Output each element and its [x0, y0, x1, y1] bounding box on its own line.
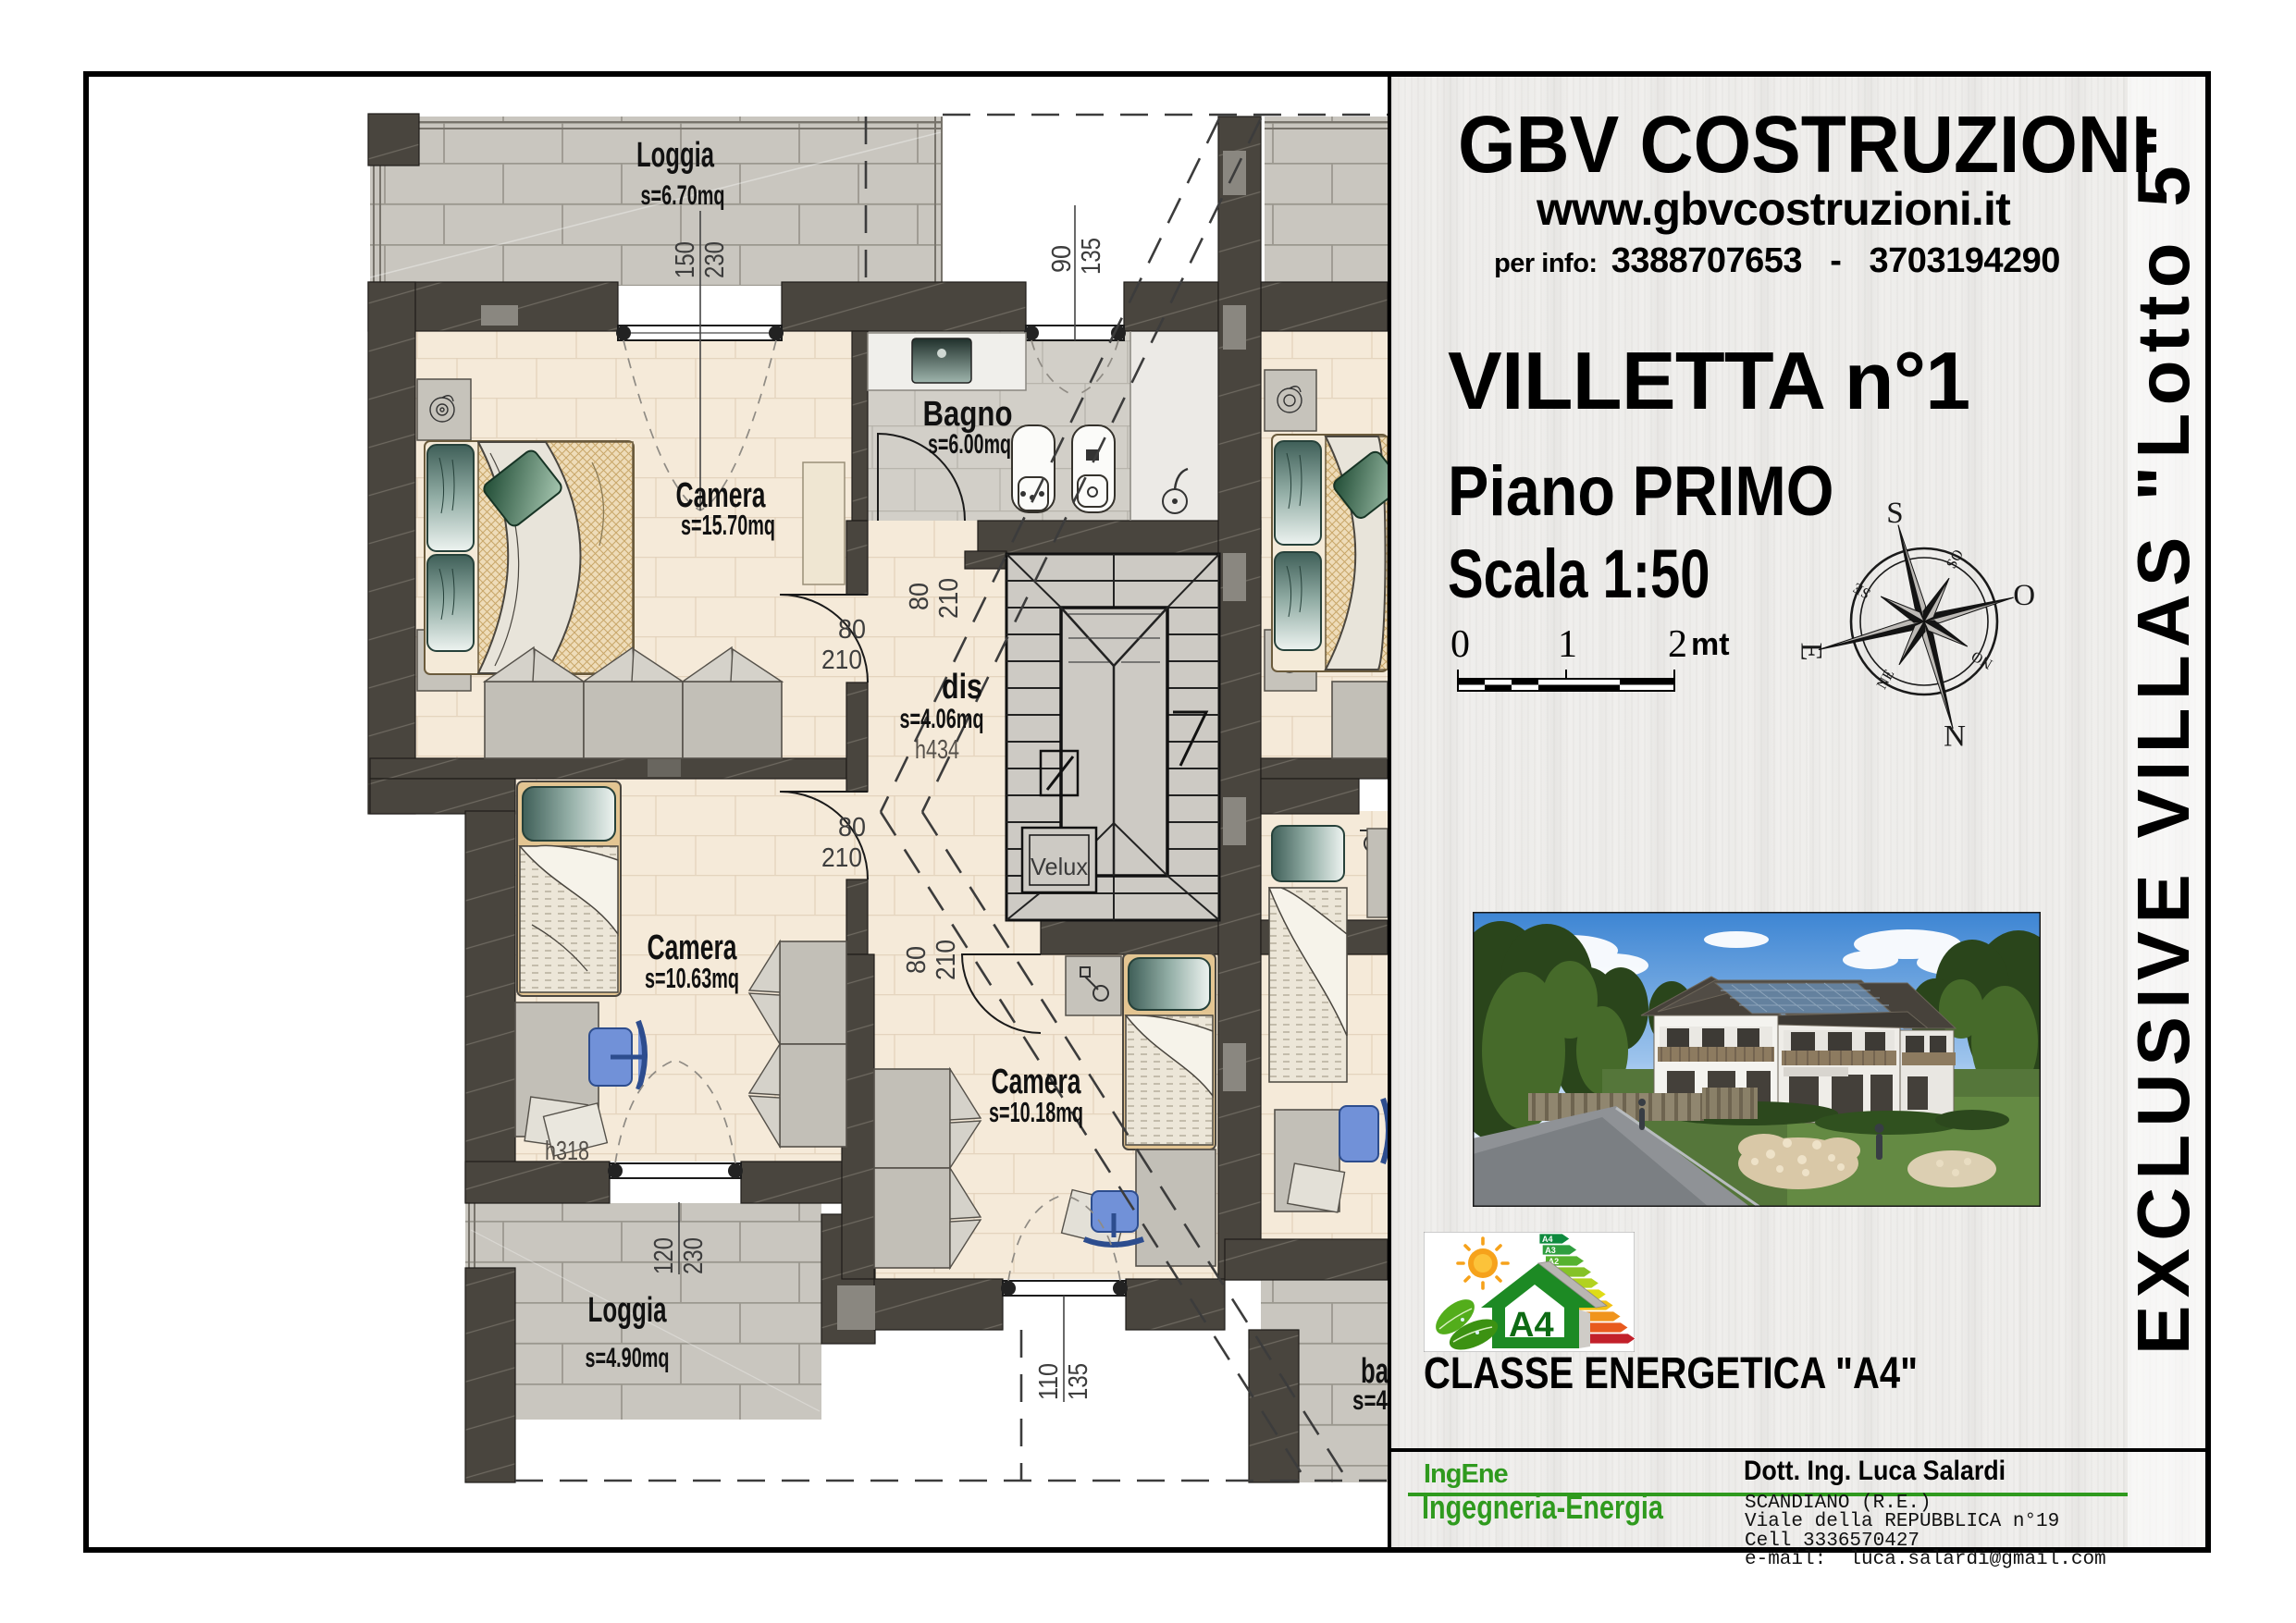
- svg-text:E: E: [1794, 643, 1827, 661]
- svg-text:230: 230: [679, 1237, 709, 1274]
- svg-text:A4: A4: [1509, 1306, 1554, 1345]
- svg-text:A3: A3: [1545, 1246, 1556, 1255]
- svg-text:210: 210: [932, 940, 961, 980]
- svg-text:210: 210: [821, 843, 862, 873]
- svg-text:Bagno: Bagno: [923, 395, 1013, 434]
- svg-text:A4: A4: [1542, 1235, 1553, 1244]
- svg-text:0: 0: [1450, 623, 1470, 666]
- svg-text:s=15.70mq: s=15.70mq: [681, 509, 775, 541]
- svg-text:230: 230: [700, 241, 730, 278]
- svg-text:Loggia: Loggia: [588, 1291, 668, 1330]
- svg-text:80: 80: [905, 583, 934, 610]
- svg-text:80: 80: [902, 946, 932, 974]
- svg-text:Velux: Velux: [1031, 853, 1088, 880]
- svg-text:135: 135: [1077, 238, 1106, 275]
- svg-text:S: S: [1886, 497, 1903, 530]
- svg-text:s=10.18mq: s=10.18mq: [989, 1096, 1083, 1128]
- svg-text:s=4.90mq: s=4.90mq: [586, 1343, 670, 1373]
- svg-text:80: 80: [838, 615, 866, 645]
- svg-text:Loggia: Loggia: [636, 136, 715, 175]
- svg-text:h318: h318: [545, 1137, 589, 1166]
- svg-text:h434: h434: [915, 735, 959, 765]
- svg-text:s=6.00mq: s=6.00mq: [928, 429, 1011, 460]
- svg-text:90: 90: [1047, 245, 1077, 273]
- svg-text:s=10.63mq: s=10.63mq: [645, 962, 739, 994]
- svg-text:135: 135: [1064, 1363, 1093, 1400]
- svg-text:SO: SO: [1944, 547, 1967, 572]
- svg-text:150: 150: [671, 241, 700, 278]
- svg-text:210: 210: [934, 578, 964, 619]
- svg-text:210: 210: [821, 646, 862, 675]
- svg-text:110: 110: [1034, 1363, 1064, 1400]
- svg-text:s=4: s=4: [1352, 1385, 1388, 1416]
- svg-text:O: O: [2013, 579, 2035, 612]
- svg-text:120: 120: [649, 1237, 679, 1274]
- svg-text:80: 80: [838, 813, 866, 842]
- svg-text:N: N: [1944, 720, 1966, 754]
- svg-text:s=6.70mq: s=6.70mq: [641, 180, 725, 211]
- svg-text:1: 1: [1558, 623, 1577, 666]
- svg-text:dis: dis: [942, 668, 982, 707]
- svg-text:EXCLUSIVE VILLAS "Lotto 5": EXCLUSIVE VILLAS "Lotto 5": [2124, 123, 2204, 1355]
- svg-text:s=4.06mq: s=4.06mq: [900, 704, 984, 734]
- svg-text:mt: mt: [1691, 627, 1730, 662]
- svg-text:2: 2: [1668, 623, 1687, 666]
